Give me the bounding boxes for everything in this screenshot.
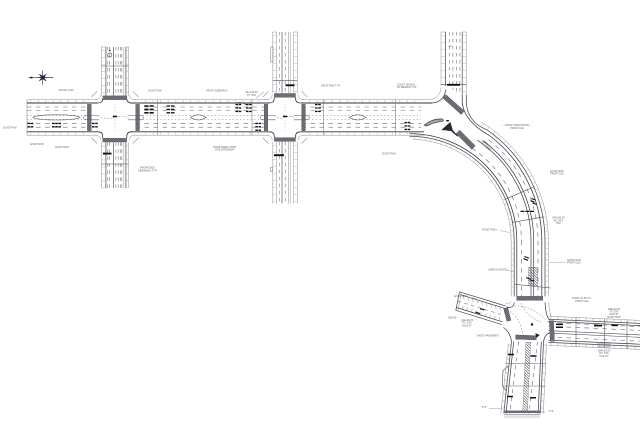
svg-text:PROP SIDEWALK: PROP SIDEWALK (206, 89, 228, 93)
svg-text:EXIST R/W: EXIST R/W (607, 315, 621, 319)
svg-text:EXIST R/W: EXIST R/W (3, 125, 17, 129)
svg-text:PROP C&G: PROP C&G (575, 299, 589, 303)
svg-text:SIDEWALK TYP: SIDEWALK TYP (138, 168, 157, 172)
svg-text:140+00: 140+00 (448, 316, 457, 320)
svg-text:(MATCH EXIST): (MATCH EXIST) (489, 267, 508, 271)
svg-text:EXIST R/W: EXIST R/W (382, 152, 396, 156)
svg-text:PT STA: PT STA (247, 93, 256, 97)
svg-text:EXIST R/W: EXIST R/W (454, 294, 468, 298)
svg-text:TO REMAIN TYP: TO REMAIN TYP (396, 85, 416, 89)
svg-text:PROP C&G: PROP C&G (567, 261, 581, 265)
svg-text:PROP C&G: PROP C&G (597, 345, 611, 349)
svg-text:EXIST R/W: EXIST R/W (148, 89, 162, 93)
svg-text:PROP C&G: PROP C&G (510, 126, 524, 130)
svg-text:TYP: TYP (481, 405, 486, 409)
svg-text:WV: WV (556, 221, 560, 225)
svg-text:EXIST R/W +: EXIST R/W + (482, 228, 498, 232)
svg-text:ELM ST: ELM ST (462, 323, 472, 327)
svg-text:EXIST R/W: EXIST R/W (30, 142, 44, 146)
svg-text:EXIST PAVEMENT: EXIST PAVEMENT (477, 334, 499, 338)
svg-text:SCALE 1=20: SCALE 1=20 (58, 88, 74, 92)
svg-text:EXIST R/W: EXIST R/W (55, 145, 69, 149)
svg-text:WV: WV (449, 46, 453, 48)
svg-text:PROP C&G: PROP C&G (550, 172, 564, 176)
svg-text:USE DRIVEWAY: USE DRIVEWAY (215, 148, 235, 152)
svg-text:OAK ST: OAK ST (599, 354, 609, 358)
svg-text:EXIST R/W TYP: EXIST R/W TYP (321, 84, 340, 88)
svg-text:TYP: TYP (548, 409, 553, 413)
